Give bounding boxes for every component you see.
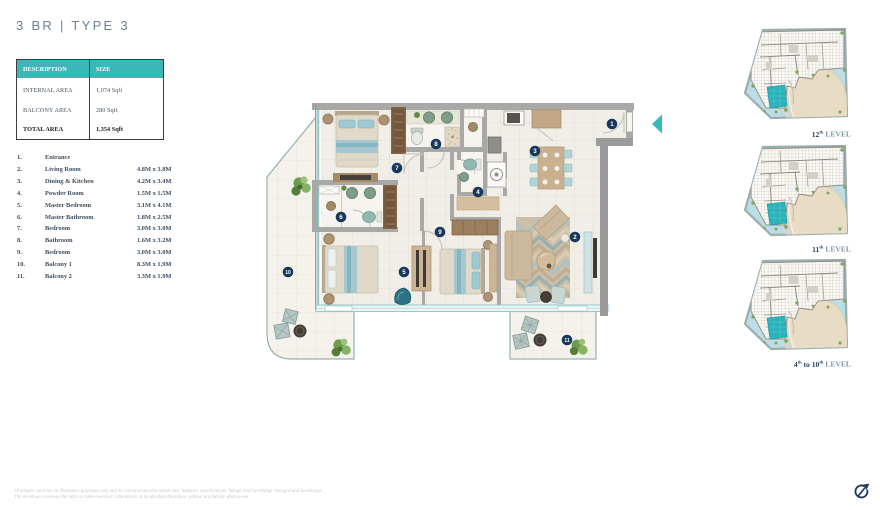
svg-text:11: 11	[564, 338, 570, 344]
svg-text:3: 3	[533, 148, 537, 155]
svg-text:7: 7	[395, 165, 399, 172]
svg-text:4: 4	[476, 189, 480, 196]
svg-text:1: 1	[610, 121, 614, 128]
svg-text:6: 6	[339, 214, 343, 221]
svg-text:9: 9	[438, 229, 442, 236]
svg-text:2: 2	[573, 234, 577, 241]
svg-text:5: 5	[402, 269, 406, 276]
svg-text:8: 8	[434, 141, 438, 148]
svg-text:10: 10	[285, 270, 291, 276]
